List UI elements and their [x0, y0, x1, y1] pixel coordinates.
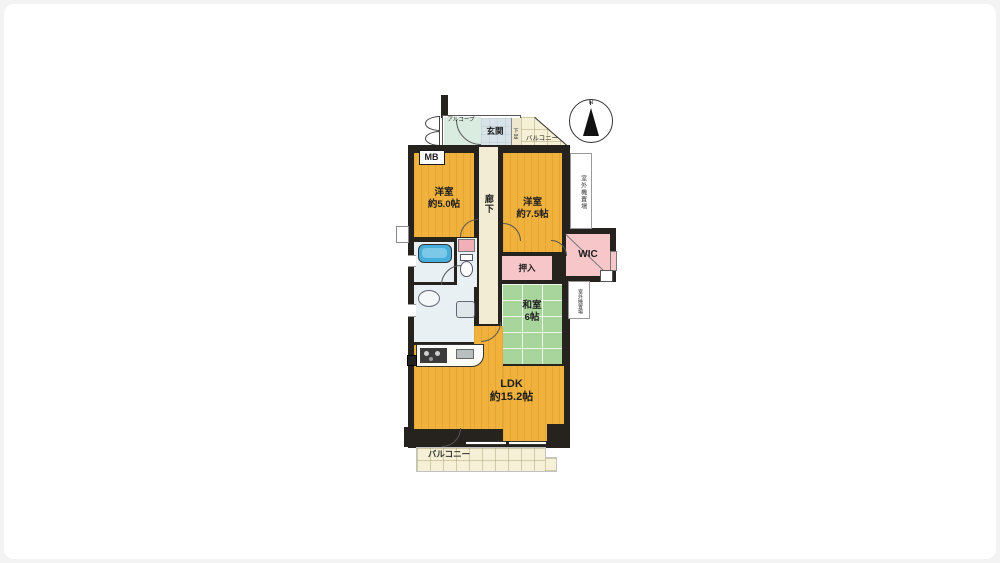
outdoor-unit-space-upper: 室外機置場 — [570, 153, 592, 229]
bathroom-window — [408, 255, 416, 267]
wic-side-door — [610, 251, 617, 271]
kitchen-sink — [456, 349, 474, 359]
alcove-door-leaf-upper — [425, 116, 440, 131]
meter-box: MB — [419, 150, 445, 165]
balcony-bottom-step — [545, 457, 557, 472]
entrance-label: 玄関 — [480, 124, 510, 138]
stove-burner — [435, 351, 440, 356]
balcony-bottom-label: バルコニー — [420, 448, 478, 461]
outdoor-unit-upper-label: 室外機置場 — [571, 158, 593, 226]
washroom-window — [408, 304, 416, 317]
wall-bottom-right-corner — [547, 424, 570, 448]
ldk-window-left — [466, 441, 506, 445]
toilet-bowl — [460, 261, 473, 277]
alcove-door-leaf-lower — [425, 131, 440, 146]
small-service-box — [600, 270, 613, 282]
western-room-75-label: 洋室 約7.5帖 — [503, 196, 562, 222]
wall-bottom-left-block — [404, 427, 418, 447]
balcony-top-label: バルコニー — [516, 133, 568, 145]
compass-tick — [590, 101, 591, 105]
kitchen-counter — [416, 344, 484, 367]
outdoor-unit-lower-label: 室外機置場 — [569, 284, 591, 318]
compass: N — [569, 99, 613, 143]
bathtub-inner — [422, 248, 447, 258]
alcove-label: アルコープ — [444, 116, 478, 124]
ldk-window-right — [509, 441, 546, 445]
oshiire-label: 押入 — [502, 262, 552, 275]
refrigerator-marker — [407, 355, 417, 366]
toilet-tank — [460, 254, 473, 261]
compass-north-label: N — [586, 100, 596, 107]
stove-burner — [429, 357, 433, 361]
corridor-label: 廊下 — [481, 188, 496, 220]
wic-label: WIC — [566, 248, 610, 262]
washing-machine-space — [456, 301, 475, 318]
western-room-5-label: 洋室 約5.0帖 — [414, 186, 474, 212]
ldk-label: LDK 約15.2帖 — [469, 378, 554, 408]
outdoor-unit-space-lower: 室外機置場 — [568, 281, 590, 319]
japanese-room-label: 和室 6帖 — [502, 299, 562, 325]
washbasin — [418, 290, 440, 307]
stove-burner — [424, 351, 429, 356]
corridor-floor — [479, 147, 498, 324]
pipe-space-box — [396, 226, 409, 243]
compass-needle — [583, 108, 599, 136]
toilet-shelf — [458, 239, 475, 252]
bathtub — [418, 244, 452, 263]
stove — [420, 348, 447, 363]
meter-box-label: MB — [420, 151, 443, 163]
floorplan-canvas: 室外機置場 室外機置場 MB アルコープ 玄関 下足 バルコニー 廊下 洋室 約… — [4, 4, 996, 559]
